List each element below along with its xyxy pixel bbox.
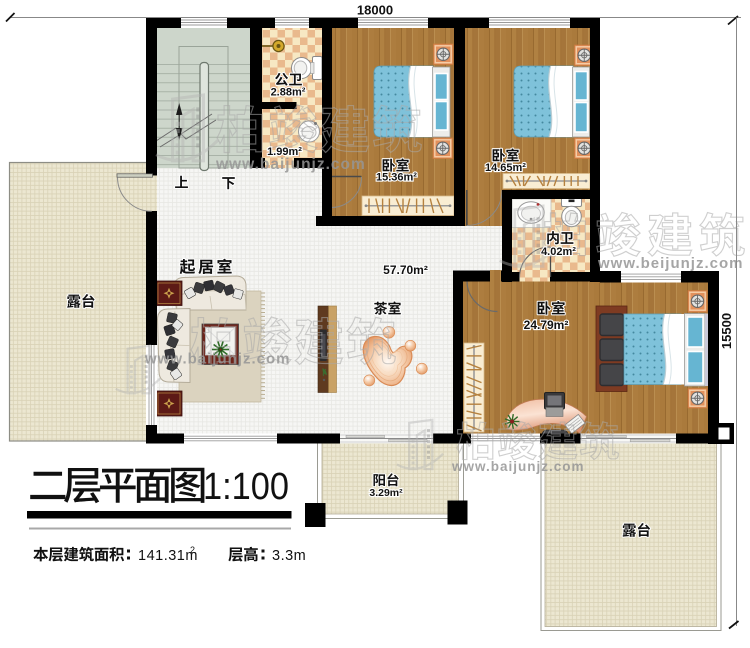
svg-text:1.99m²: 1.99m²	[267, 146, 302, 158]
svg-text:18000: 18000	[357, 3, 393, 18]
svg-text:3.29m²: 3.29m²	[369, 487, 403, 499]
svg-text:24.79m²: 24.79m²	[524, 318, 569, 332]
svg-text:14.65m²: 14.65m²	[485, 162, 526, 174]
svg-text:15.36m²: 15.36m²	[376, 172, 417, 184]
svg-text:2: 2	[190, 545, 195, 555]
svg-text:141.31m: 141.31m	[138, 548, 198, 564]
svg-text:1:100: 1:100	[203, 466, 289, 508]
svg-text:www.baijunjz.com: www.baijunjz.com	[215, 156, 366, 173]
svg-text:www.beijunjz.com: www.beijunjz.com	[597, 255, 743, 272]
svg-text:57.70m²: 57.70m²	[383, 263, 428, 277]
svg-text:3.3m: 3.3m	[272, 548, 306, 564]
svg-text:4.02m²: 4.02m²	[541, 246, 576, 258]
svg-text:www.baijunjz.com: www.baijunjz.com	[144, 351, 290, 368]
svg-text:www.baijunjz.com: www.baijunjz.com	[451, 459, 585, 474]
svg-text:2.88m²: 2.88m²	[271, 87, 306, 99]
svg-text:15500: 15500	[719, 313, 734, 349]
